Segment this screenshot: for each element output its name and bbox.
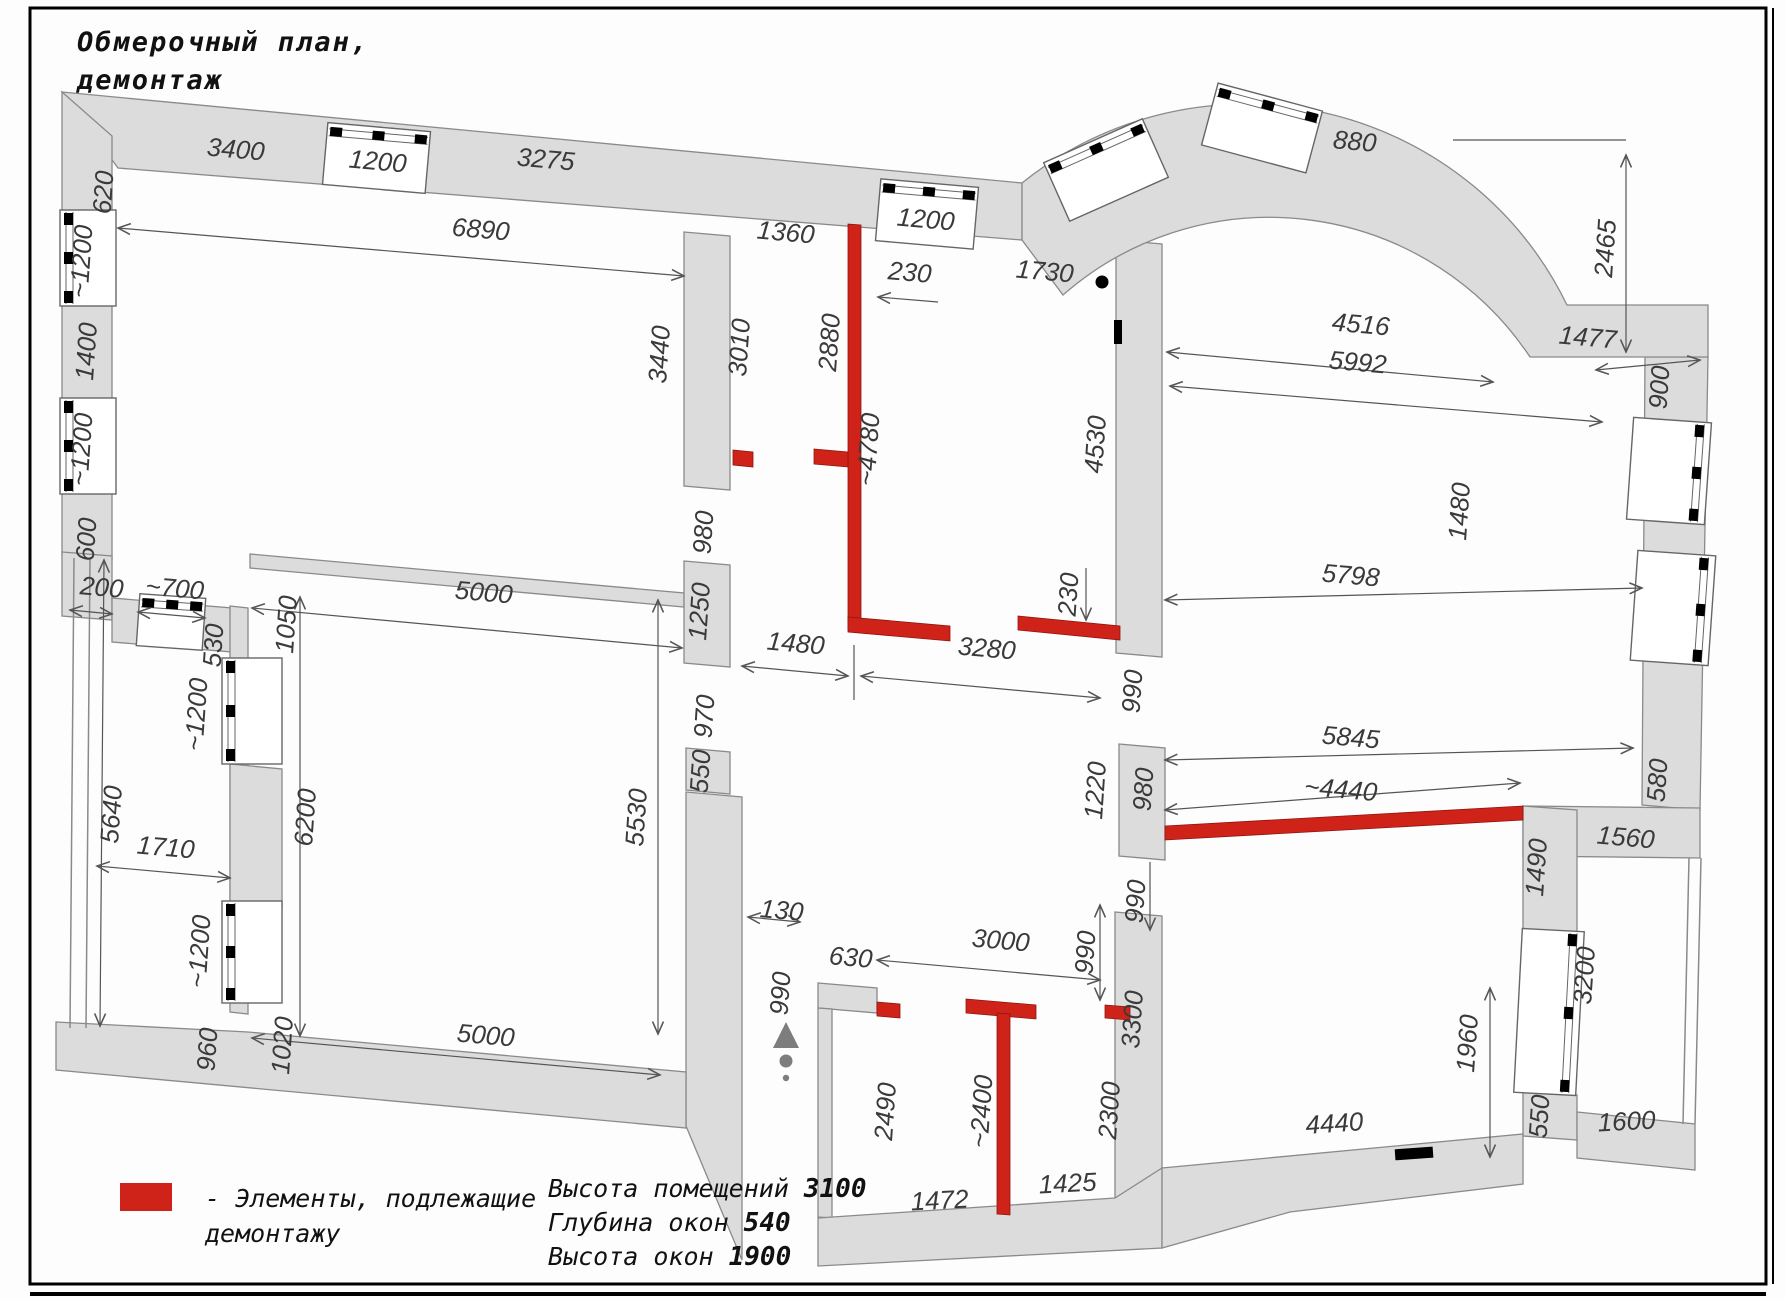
dimension-line [1170, 386, 1602, 422]
dimension-line [1165, 748, 1633, 760]
title-line2: демонтаж [77, 62, 369, 100]
dimension-line [877, 960, 1100, 980]
dim-label-990: 990 [1119, 878, 1152, 924]
wall [56, 1022, 686, 1128]
dim-label-1480: 1480 [1442, 481, 1476, 541]
dim-label-3280: 3280 [957, 631, 1018, 666]
dim-label-960: 960 [191, 1026, 224, 1072]
door-pivot-icon [1096, 276, 1109, 289]
demolition-element [814, 449, 848, 467]
dim-label-5992: 5992 [1328, 345, 1389, 380]
dim-label-990: 990 [764, 970, 797, 1016]
demolition-element [997, 1013, 1010, 1215]
dim-label-1020: 1020 [265, 1015, 299, 1075]
dim-label-1220: 1220 [1078, 760, 1112, 820]
dimension-line [861, 676, 1100, 698]
dim-label-~1200: ~1200 [182, 913, 217, 988]
dim-label-200: 200 [78, 570, 125, 604]
legend-line2: демонтажу [205, 1216, 536, 1251]
wall [818, 1168, 1162, 1266]
wall [1116, 240, 1162, 657]
window [1630, 550, 1715, 665]
window [222, 901, 282, 1003]
dim-label-990: 990 [1069, 929, 1102, 975]
dim-label-600: 600 [70, 516, 103, 562]
dim-label-5530: 5530 [619, 787, 653, 847]
dim-label-1200: 1200 [896, 202, 957, 237]
dim-label-1477: 1477 [1558, 320, 1620, 355]
dim-label-3275: 3275 [516, 142, 577, 177]
dim-label-880: 880 [1332, 124, 1378, 158]
dim-label-5000: 5000 [454, 575, 515, 610]
wall [230, 764, 282, 909]
dim-label-230: 230 [1051, 571, 1084, 618]
demolition-element [1018, 616, 1120, 640]
demolition-element [848, 617, 950, 641]
demolition-element [877, 1002, 900, 1018]
dim-label-2300: 2300 [1092, 1080, 1126, 1141]
dim-label-4530: 4530 [1078, 414, 1112, 474]
dim-label-~2400: ~2400 [964, 1073, 999, 1148]
balcony-rail [1683, 858, 1689, 1124]
dim-label-~700: ~700 [144, 571, 205, 606]
dim-label-1960: 1960 [1450, 1013, 1484, 1073]
dimension-line [97, 866, 230, 878]
dim-label-~4440: ~4440 [1303, 771, 1379, 807]
dimension-line [1165, 588, 1642, 600]
dim-label-230: 230 [886, 255, 933, 289]
dim-label-1250: 1250 [682, 581, 716, 641]
dim-label-3400: 3400 [206, 132, 267, 167]
wall [1115, 912, 1162, 1200]
demolition-swatch-icon [120, 1183, 172, 1211]
dimension-line [252, 608, 682, 648]
dim-label-2465: 2465 [1588, 218, 1622, 279]
dim-label-~4780: ~4780 [851, 411, 886, 486]
dim-label-1560: 1560 [1596, 820, 1657, 855]
dim-label-980: 980 [1127, 766, 1160, 812]
dim-label-2880: 2880 [812, 312, 846, 373]
dim-label-2490: 2490 [868, 1081, 902, 1142]
dim-label-~1200: ~1200 [179, 676, 214, 751]
floor-plan: 3400120032756890136023017301200880451659… [0, 0, 1785, 1300]
dim-label-~1200: ~1200 [64, 411, 99, 486]
dim-label-4516: 4516 [1331, 307, 1392, 342]
note-window-height: Высота окон 1900 [548, 1240, 867, 1274]
dim-label-1360: 1360 [756, 215, 817, 250]
drawing-sheet: 3400120032756890136023017301200880451659… [0, 0, 1785, 1300]
entry-direction-icon [773, 1022, 799, 1048]
dim-label-550: 550 [1523, 1093, 1556, 1139]
dim-label-130: 130 [759, 893, 805, 927]
dim-label-1600: 1600 [1597, 1104, 1657, 1137]
dimension-line [878, 297, 938, 302]
dim-label-~1200: ~1200 [64, 223, 99, 298]
legend-line1: - Элементы, подлежащие [205, 1181, 536, 1216]
dim-label-980: 980 [687, 509, 720, 555]
balcony-rail [1695, 858, 1701, 1124]
dim-label-1200: 1200 [348, 144, 409, 179]
dim-label-5798: 5798 [1321, 558, 1382, 593]
dim-label-970: 970 [688, 693, 721, 739]
dim-label-5845: 5845 [1321, 720, 1382, 755]
window [222, 658, 282, 764]
wall [1162, 1134, 1523, 1248]
dim-label-3010: 3010 [722, 317, 756, 377]
dimension-line [118, 228, 684, 276]
dim-label-6890: 6890 [451, 212, 512, 247]
dim-label-580: 580 [1641, 757, 1674, 803]
dim-label-1050: 1050 [269, 594, 303, 654]
title-line1: Обмерочный план, [77, 24, 369, 62]
dim-label-4440: 4440 [1304, 1106, 1364, 1140]
dim-label-530: 530 [197, 622, 230, 668]
dimension-line [742, 666, 848, 676]
drawing-title: Обмерочный план, демонтаж [77, 24, 369, 100]
demolition-element [733, 450, 753, 467]
door-mark [1114, 320, 1122, 344]
demolition-element [1165, 806, 1523, 840]
window [1627, 417, 1712, 524]
dim-label-620: 620 [87, 169, 120, 215]
balcony-rail [70, 558, 74, 1028]
dim-label-900: 900 [1643, 364, 1676, 410]
balcony-rail [86, 558, 90, 1028]
dim-label-1425: 1425 [1038, 1166, 1098, 1199]
dim-label-1710: 1710 [136, 830, 197, 865]
dim-label-3000: 3000 [971, 923, 1032, 958]
dim-label-6200: 6200 [288, 787, 322, 847]
dim-label-5000: 5000 [456, 1018, 517, 1053]
dim-label-3200: 3200 [1567, 945, 1601, 1005]
dim-label-3440: 3440 [642, 324, 676, 384]
dim-label-990: 990 [1116, 668, 1149, 714]
entry-dot [780, 1055, 793, 1068]
dim-label-1472: 1472 [910, 1183, 970, 1216]
notes-block: Высота помещений 3100 Глубина окон 540 В… [548, 1172, 867, 1274]
dim-label-1490: 1490 [1519, 837, 1553, 897]
dim-label-5640: 5640 [94, 784, 128, 844]
dim-label-1400: 1400 [69, 321, 103, 381]
entry-dot [783, 1075, 789, 1081]
dim-label-630: 630 [828, 940, 874, 974]
dim-label-3300: 3300 [1115, 989, 1149, 1049]
dim-label-1730: 1730 [1015, 254, 1076, 289]
dim-label-1480: 1480 [766, 626, 827, 661]
note-room-height: Высота помещений 3100 [548, 1172, 867, 1206]
note-window-depth: Глубина окон 540 [548, 1206, 867, 1240]
dim-label-550: 550 [684, 748, 717, 794]
